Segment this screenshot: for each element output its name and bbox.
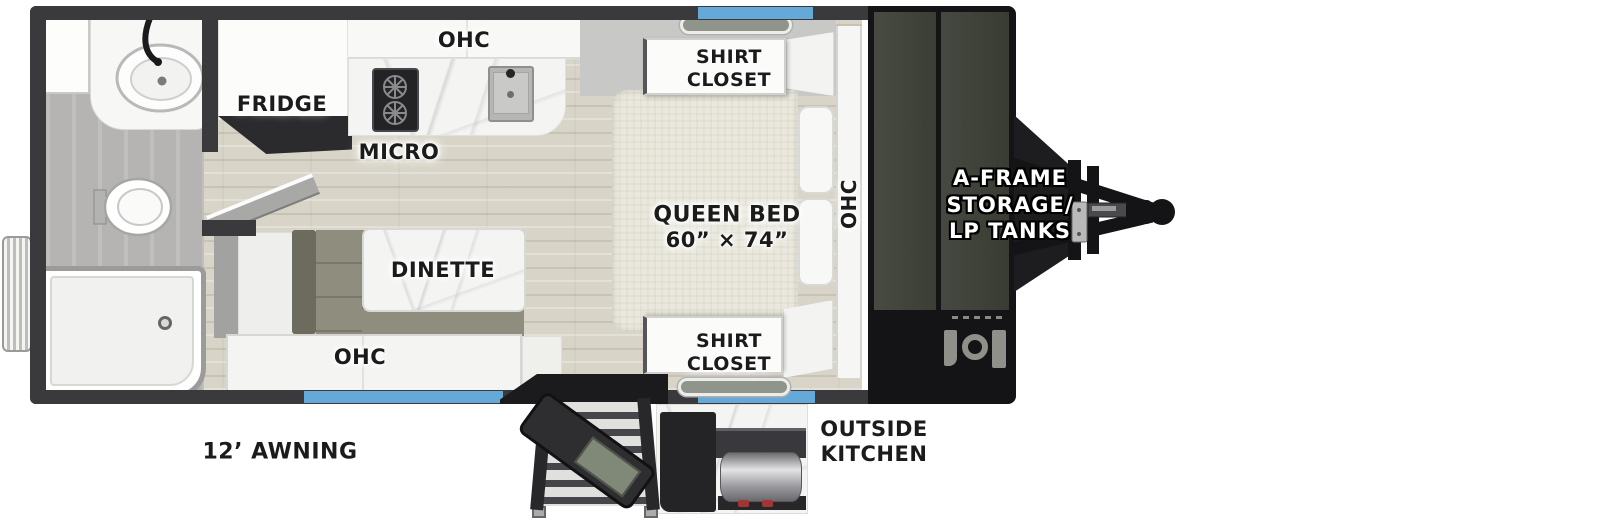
- front-storage-label-line2: STORAGE/: [947, 193, 1074, 217]
- pillow: [798, 106, 834, 194]
- rear-bumper-icon: [2, 236, 32, 352]
- window-bottom-left: [304, 391, 503, 403]
- shower-pan: [50, 276, 194, 386]
- dinette-bench-seat: [316, 230, 364, 334]
- kitchen-faucet-icon: [506, 69, 515, 78]
- toilet-icon: [92, 176, 174, 238]
- kitchen-sink-drain-icon: [507, 91, 514, 98]
- micro-label: MICRO: [359, 140, 440, 164]
- bed-ohc-label: OHC: [837, 179, 861, 229]
- awning-label: 12’ AWNING: [202, 440, 357, 465]
- storage-panel: [941, 12, 1009, 310]
- grill-icon: [720, 452, 802, 502]
- outside-kitchen-label-line1: OUTSIDE: [820, 417, 927, 441]
- shirt-closet-bottom-label-line2: CLOSET: [687, 353, 771, 375]
- dinette-side-wall: [214, 232, 238, 338]
- queen-bed-label-line1: QUEEN BED: [653, 203, 800, 228]
- dinette-label: DINETTE: [391, 258, 495, 282]
- corner-panel-top-right: [786, 32, 834, 96]
- dinette-ohc-label: OHC: [334, 345, 386, 369]
- kitchen-ohc-label: OHC: [438, 28, 490, 52]
- outside-kitchen-label-line2: KITCHEN: [821, 442, 928, 466]
- corner-panel-bottom-right: [783, 300, 833, 378]
- storage-panel: [874, 12, 936, 310]
- shower-drain-icon: [158, 316, 172, 330]
- roof-vent-bottom-icon: [678, 378, 790, 396]
- outside-kitchen-cabinet: [660, 412, 716, 512]
- dinette-end-panel: [238, 232, 294, 338]
- dinette-bench-back: [292, 230, 316, 334]
- shirt-closet-top-label-line1: SHIRT: [696, 46, 762, 68]
- pillow: [798, 198, 834, 286]
- wall-left: [30, 6, 46, 404]
- front-storage-label-line1: A-FRAME: [953, 166, 1067, 190]
- bathroom-wall-top: [202, 6, 218, 152]
- bathroom-sink-icon: [104, 16, 216, 126]
- shirt-closet-top-label-line2: CLOSET: [687, 69, 771, 91]
- queen-bed-label-line2: 60” × 74”: [666, 228, 789, 252]
- grill-knob-icon: [738, 500, 749, 507]
- window-top: [698, 7, 813, 19]
- cooktop-burners-icon: [372, 68, 419, 132]
- grill-knob-icon: [762, 500, 773, 507]
- wall-stub: [202, 220, 256, 236]
- front-storage-label-line3: LP TANKS: [949, 219, 1071, 243]
- floorplan-canvas: FRIDGE OHC MICRO DINETTE OHC SHIRT CLOSE…: [0, 0, 1600, 521]
- brand-logo: [940, 312, 1010, 376]
- shirt-closet-bottom-label-line1: SHIRT: [696, 330, 762, 352]
- fridge-label: FRIDGE: [237, 92, 327, 116]
